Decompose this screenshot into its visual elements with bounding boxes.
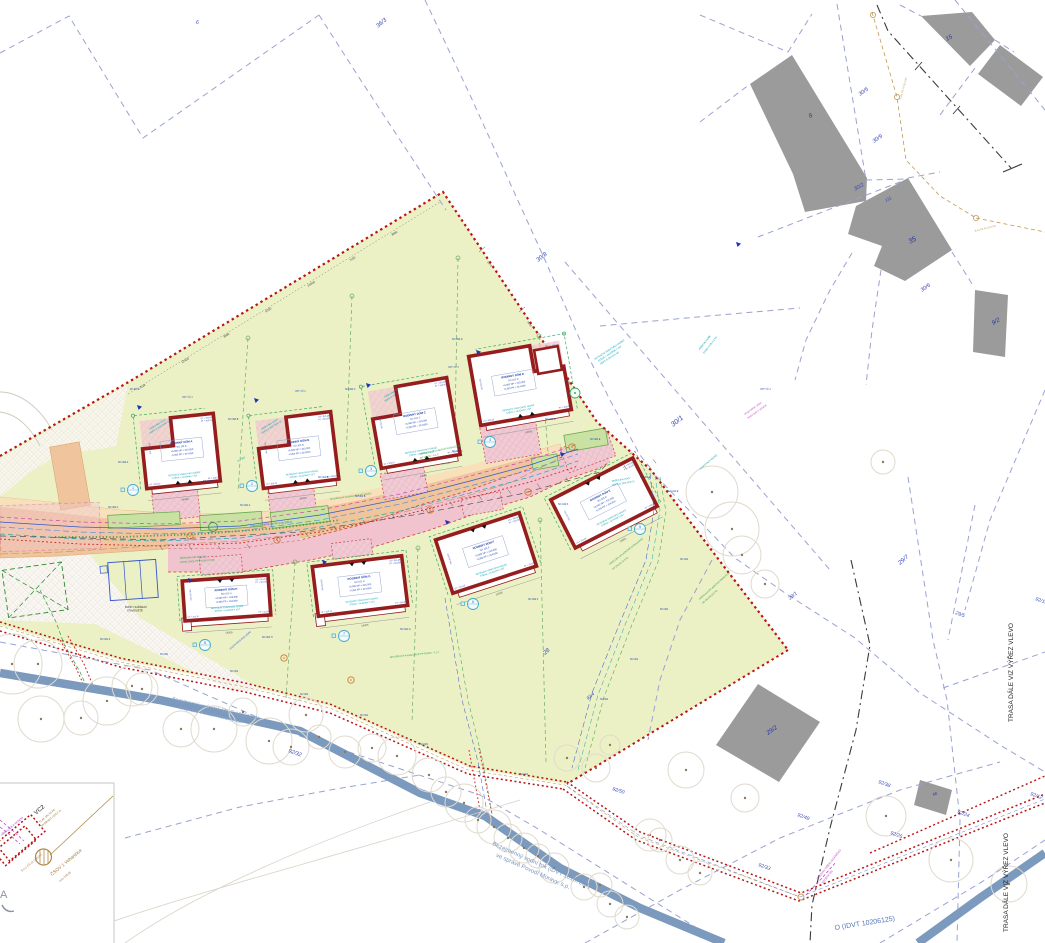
svg-text:6: 6 [196,20,199,26]
svg-text:SO 494 A: SO 494 A [118,461,129,464]
svg-text:TRASA DÁLE VIZ VÝŘEZ VLEVO: TRASA DÁLE VIZ VÝŘEZ VLEVO [1001,833,1010,932]
svg-text:SO 401 B: SO 401 B [318,476,329,479]
svg-text:SO 401 G: SO 401 G [400,628,411,631]
svg-text:SO 401: SO 401 [360,714,369,717]
svg-text:VRT VČ 4: VRT VČ 4 [760,388,771,391]
svg-text:SO 461 D: SO 461 D [545,418,556,421]
svg-text:SO 401: SO 401 [230,670,239,673]
svg-text:SO 461: SO 461 [600,698,609,701]
svg-text:SO 481 E: SO 481 E [590,438,601,441]
svg-text:TRASA DÁLE VIZ VÝŘEZ VLEVO: TRASA DÁLE VIZ VÝŘEZ VLEVO [1006,623,1015,722]
svg-text:SO 464 A: SO 464 A [108,506,119,509]
svg-text:SO 494 C: SO 494 C [345,388,356,391]
svg-text:SO 494 D: SO 494 D [452,338,463,341]
svg-text:SO 401: SO 401 [680,558,689,561]
svg-text:SO 461 A: SO 461 A [240,504,251,507]
svg-text:1: 1 [132,486,134,490]
svg-text:SO 412 E: SO 412 E [668,490,679,493]
svg-text:SO 461 K: SO 461 K [100,638,111,641]
svg-text:7: 7 [343,632,345,636]
svg-text:SO 461: SO 461 [300,693,309,696]
svg-text:3: 3 [370,467,372,471]
svg-text:90 463 E: 90 463 E [130,388,140,391]
svg-text:8: 8 [204,641,206,645]
svg-text:6: 6 [472,600,474,604]
svg-text:14005: 14005 [225,630,233,635]
svg-text:14005: 14005 [181,497,189,502]
svg-text:SO 451 H: SO 451 H [262,636,273,639]
svg-text:A: A [0,889,8,901]
svg-text:SO 401: SO 401 [520,773,529,776]
svg-text:5: 5 [639,525,641,529]
svg-text:VRT VČ 3: VRT VČ 3 [448,366,459,369]
svg-text:SO 442 K: SO 442 K [558,503,569,506]
svg-text:SO 494 B: SO 494 B [228,418,239,421]
svg-text:SO 461: SO 461 [660,608,669,611]
svg-text:SO 402 F: SO 402 F [528,598,539,601]
svg-text:SO 402 C: SO 402 C [452,450,463,453]
svg-text:2: 2 [251,482,253,486]
svg-text:SO 461: SO 461 [420,743,429,746]
svg-text:SO 402 A: SO 402 A [203,480,214,483]
svg-text:VRT VČ 2: VRT VČ 2 [295,390,306,393]
svg-text:4: 4 [489,438,491,442]
svg-text:VRT VČ 1: VRT VČ 1 [182,396,193,399]
svg-text:SO 463 E: SO 463 E [640,476,651,479]
svg-text:SO 401: SO 401 [630,658,639,661]
svg-text:SO 461: SO 461 [160,653,169,656]
svg-text:SO 461 B: SO 461 B [355,495,366,498]
